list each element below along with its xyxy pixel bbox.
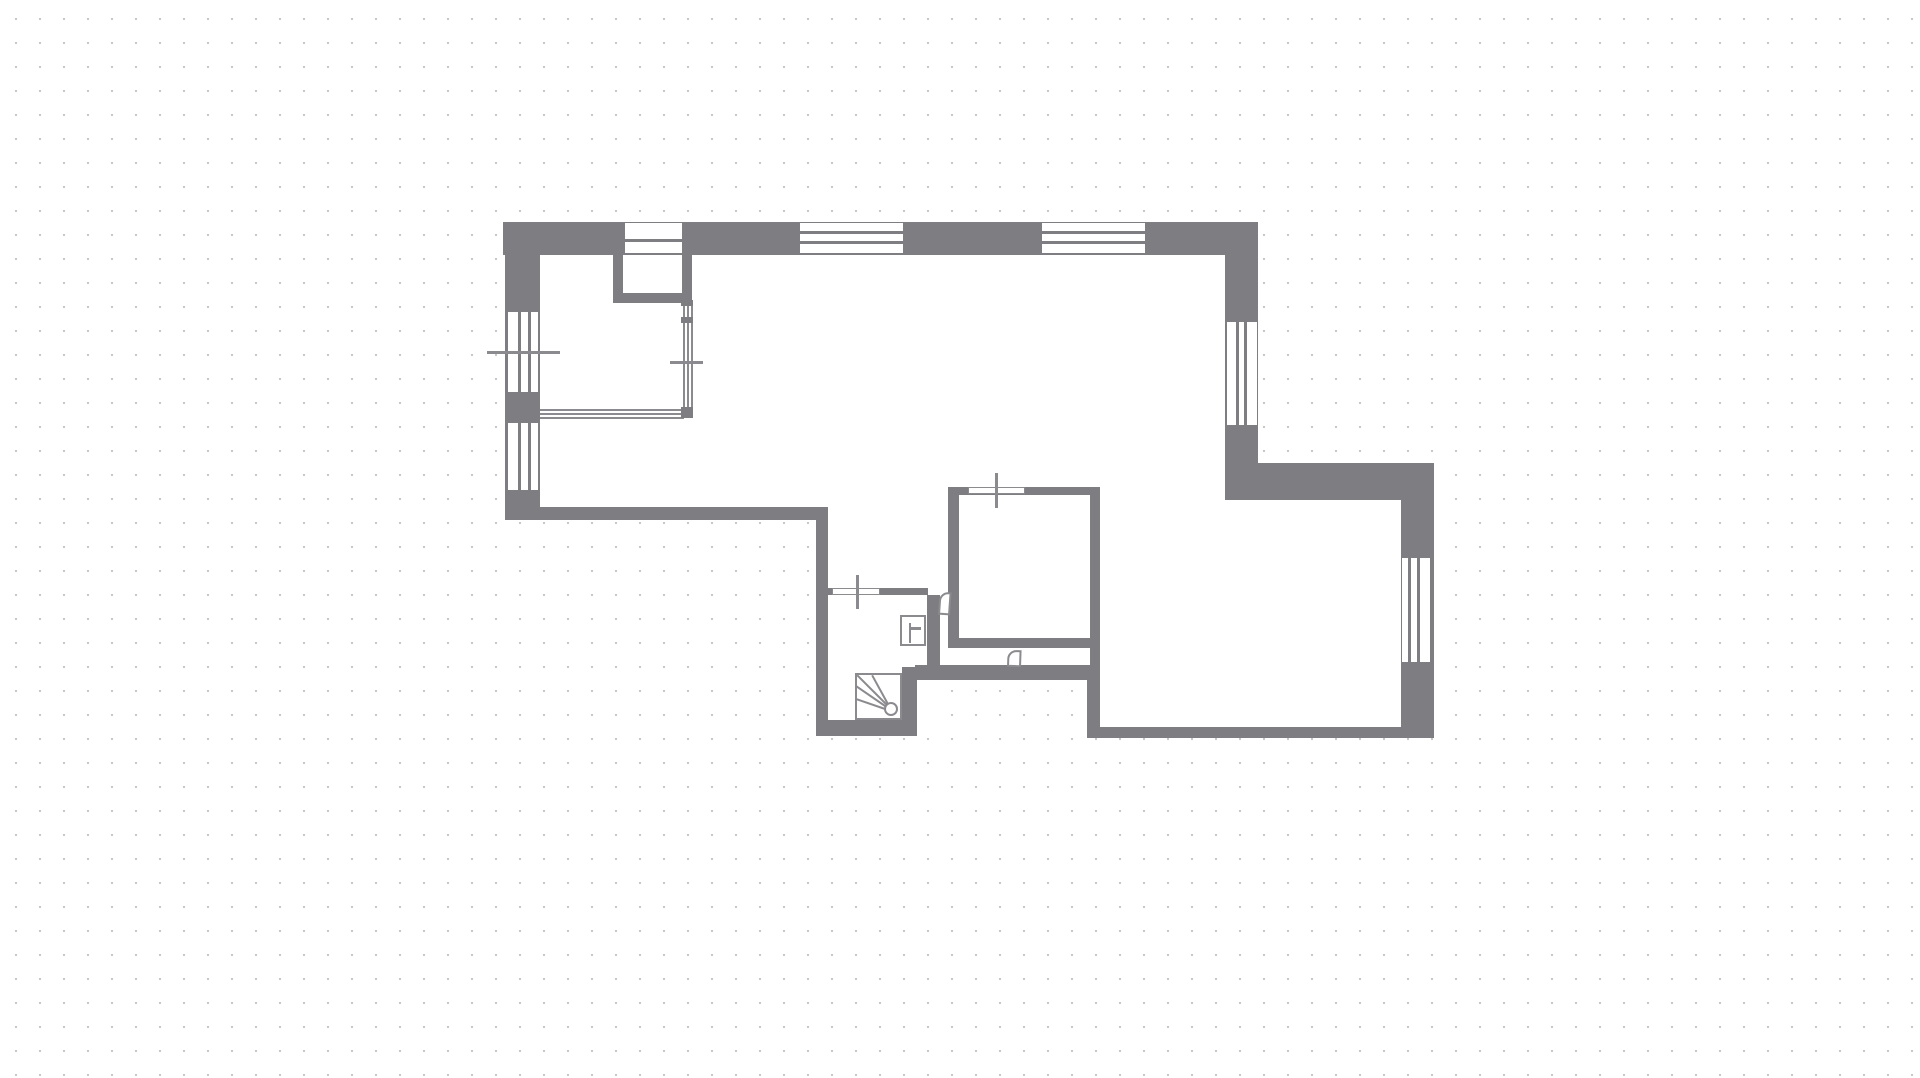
window-top-b[interactable] xyxy=(800,223,903,253)
wc-fixture-symbol-h xyxy=(910,627,921,630)
floor-bedroom-block[interactable] xyxy=(948,487,1100,680)
window-right-f-mullion-1 xyxy=(1236,322,1239,425)
floor-bottom-right-room[interactable] xyxy=(1098,495,1402,727)
window-left-e-mullion-1 xyxy=(518,423,521,490)
door-marker-bedroom-top-tick xyxy=(995,473,998,508)
window-right-g-mullion-2 xyxy=(1417,558,1420,662)
window-top-b-mullion-1 xyxy=(800,231,903,234)
window-right-g[interactable] xyxy=(1402,558,1430,662)
wall-bottom-left[interactable] xyxy=(505,507,828,520)
glazing-horizontal-line-3[interactable] xyxy=(540,417,684,419)
stairs-newel-post xyxy=(884,702,898,716)
window-top-b-mullion-2 xyxy=(800,241,903,244)
window-top-a[interactable] xyxy=(625,223,682,253)
window-top-a-mullion-1 xyxy=(625,239,682,242)
wc-fixture-symbol-v xyxy=(909,623,911,643)
window-marker-left-wall xyxy=(487,351,560,354)
window-right-f[interactable] xyxy=(1227,322,1257,425)
glazing-horizontal-line-1[interactable] xyxy=(540,409,684,411)
window-left-e[interactable] xyxy=(508,423,538,490)
glazing-joint-top xyxy=(681,300,693,306)
wc-door-leaf[interactable] xyxy=(938,592,952,616)
floorplan-canvas[interactable] xyxy=(0,0,1920,1078)
glazing-horizontal-line-2[interactable] xyxy=(540,413,684,415)
wall-bedroom-bottom[interactable] xyxy=(952,638,1100,648)
window-top-c[interactable] xyxy=(1042,223,1145,253)
window-left-e-mullion-2 xyxy=(528,423,531,490)
window-top-c-mullion-2 xyxy=(1042,241,1145,244)
opening-marker-glazing xyxy=(670,361,703,364)
wall-mid-thick[interactable] xyxy=(915,665,1100,680)
glazing-joint-mid xyxy=(681,317,693,323)
wall-bedroom-left[interactable] xyxy=(948,487,959,648)
glazing-joint-corner xyxy=(681,407,693,418)
wall-bottom-right-exterior[interactable] xyxy=(1087,727,1434,738)
wc-fixture-box[interactable] xyxy=(900,615,926,646)
door-marker-hall-tick xyxy=(856,575,859,609)
window-top-c-mullion-1 xyxy=(1042,231,1145,234)
bedroom-door-leaf[interactable] xyxy=(1007,650,1022,667)
wall-hall-left[interactable] xyxy=(816,520,828,736)
window-right-g-mullion-1 xyxy=(1408,558,1411,662)
window-right-f-mullion-2 xyxy=(1244,322,1247,425)
